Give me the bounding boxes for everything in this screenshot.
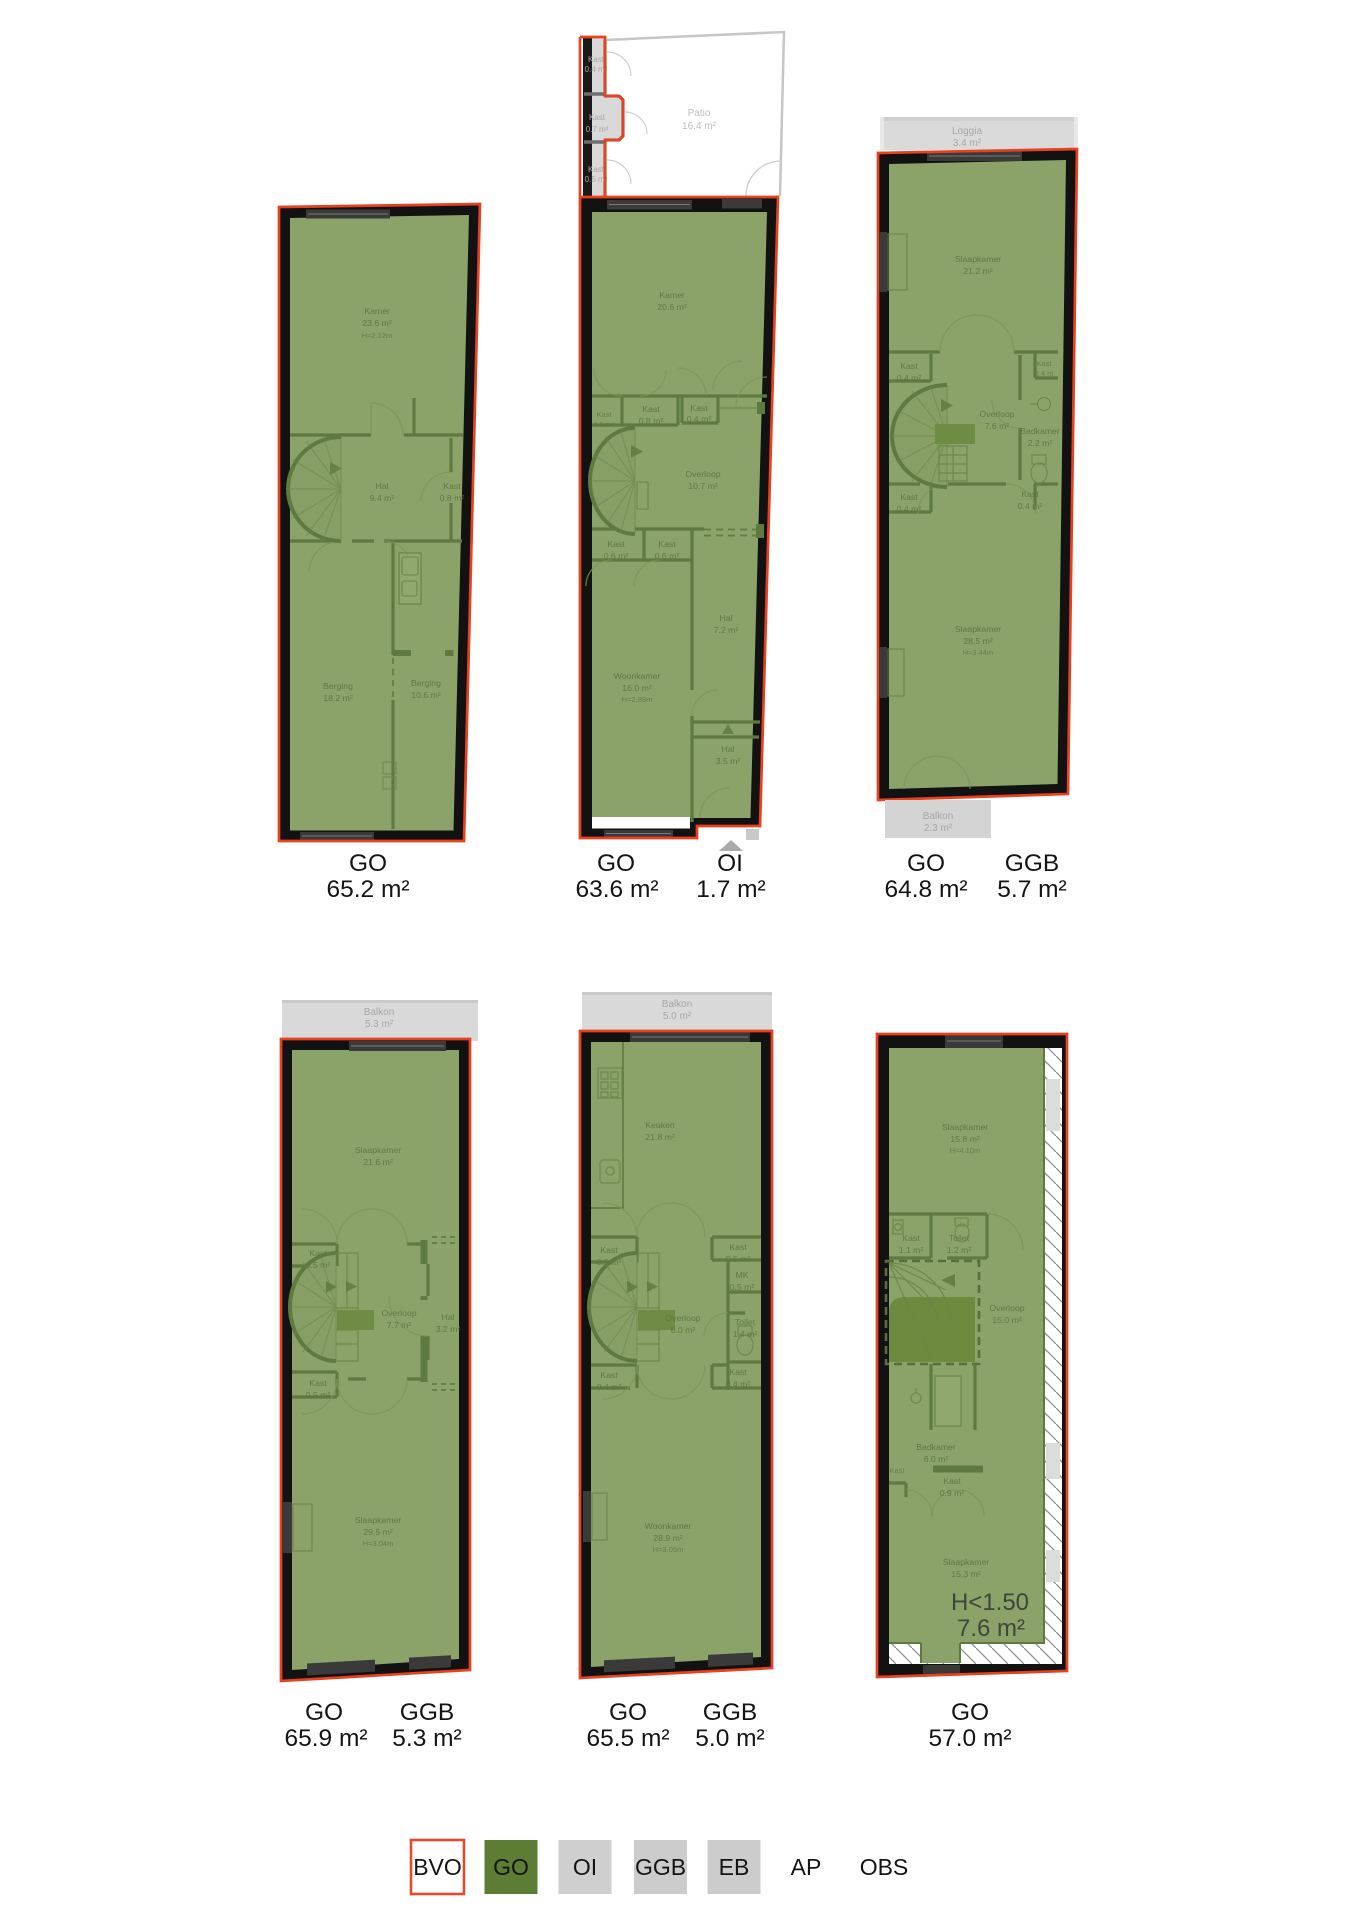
svg-text:Slaapkamer: Slaapkamer bbox=[943, 1557, 989, 1567]
svg-text:5.0 m²: 5.0 m² bbox=[695, 1725, 764, 1752]
svg-text:29.5 m²: 29.5 m² bbox=[363, 1527, 393, 1537]
svg-text:Slaapkamer: Slaapkamer bbox=[955, 254, 1001, 264]
svg-text:Kast: Kast bbox=[1021, 489, 1039, 499]
svg-text:Overloop: Overloop bbox=[381, 1308, 416, 1318]
svg-text:Hal: Hal bbox=[719, 613, 732, 623]
svg-text:GGB: GGB bbox=[703, 1699, 757, 1726]
svg-text:18.2 m²: 18.2 m² bbox=[323, 693, 353, 703]
svg-text:6.0 m²: 6.0 m² bbox=[924, 1454, 949, 1464]
svg-text:Hal: Hal bbox=[375, 481, 388, 491]
svg-text:GO: GO bbox=[305, 1699, 343, 1726]
svg-text:Kamer: Kamer bbox=[659, 290, 685, 300]
svg-text:Toilet: Toilet bbox=[735, 1317, 756, 1327]
svg-text:Hal: Hal bbox=[721, 744, 734, 754]
svg-text:9.4 m²: 9.4 m² bbox=[370, 493, 395, 503]
svg-text:0.8 m²: 0.8 m² bbox=[639, 416, 664, 426]
svg-text:GGB: GGB bbox=[1005, 850, 1059, 877]
svg-text:Kamer: Kamer bbox=[364, 306, 390, 316]
svg-text:1.4 m²: 1.4 m² bbox=[733, 1329, 758, 1339]
svg-text:23.6 m²: 23.6 m² bbox=[362, 318, 392, 328]
svg-text:AP: AP bbox=[791, 1854, 822, 1880]
svg-text:OI: OI bbox=[573, 1854, 597, 1880]
svg-text:65.5 m²: 65.5 m² bbox=[586, 1725, 669, 1752]
svg-text:0.5 m²: 0.5 m² bbox=[730, 1282, 755, 1292]
svg-text:21.2 m²: 21.2 m² bbox=[963, 266, 993, 276]
svg-text:15.8 m²: 15.8 m² bbox=[950, 1134, 980, 1144]
svg-text:BVO: BVO bbox=[413, 1854, 462, 1880]
svg-text:Kast: Kast bbox=[589, 113, 606, 122]
svg-text:1.1 m²: 1.1 m² bbox=[899, 1245, 924, 1255]
svg-text:28.9 m²: 28.9 m² bbox=[653, 1533, 683, 1543]
svg-text:Overloop: Overloop bbox=[665, 1313, 700, 1323]
svg-text:10.7 m²: 10.7 m² bbox=[688, 481, 718, 491]
svg-text:0.5 m²: 0.5 m² bbox=[306, 1260, 331, 1270]
svg-text:0.6 m²: 0.6 m² bbox=[655, 551, 680, 561]
svg-text:0.4 m: 0.4 m bbox=[1035, 369, 1054, 378]
svg-text:0.4 m²: 0.4 m² bbox=[897, 504, 922, 514]
svg-text:H=3.04m: H=3.04m bbox=[363, 1539, 394, 1548]
svg-text:0.6 m²: 0.6 m² bbox=[604, 551, 629, 561]
svg-text:Hal: Hal bbox=[441, 1312, 454, 1322]
svg-text:3.4 m²: 3.4 m² bbox=[953, 138, 982, 149]
svg-text:Overloop: Overloop bbox=[979, 409, 1014, 419]
svg-text:Berging: Berging bbox=[411, 678, 441, 688]
svg-text:Kast: Kast bbox=[902, 1233, 920, 1243]
svg-text:20.6 m²: 20.6 m² bbox=[657, 302, 687, 312]
svg-text:Kast: Kast bbox=[588, 55, 605, 64]
svg-text:GO: GO bbox=[349, 850, 387, 877]
svg-text:OBS: OBS bbox=[860, 1854, 909, 1880]
svg-text:Loggia: Loggia bbox=[952, 126, 982, 137]
svg-text:0.8 m²: 0.8 m² bbox=[440, 493, 465, 503]
svg-text:3.2 m²: 3.2 m² bbox=[436, 1324, 461, 1334]
svg-text:15.3 m²: 15.3 m² bbox=[951, 1569, 981, 1579]
svg-text:Overloop: Overloop bbox=[685, 469, 720, 479]
svg-text:0.5 m²: 0.5 m² bbox=[726, 1254, 751, 1264]
svg-text:65.2 m²: 65.2 m² bbox=[326, 876, 409, 903]
svg-text:5.7 m²: 5.7 m² bbox=[997, 876, 1066, 903]
svg-text:Balkon: Balkon bbox=[364, 1007, 395, 1018]
svg-text:MK: MK bbox=[735, 1270, 748, 1280]
svg-text:7.7 m²: 7.7 m² bbox=[387, 1320, 412, 1330]
svg-text:Toilet: Toilet bbox=[949, 1233, 970, 1243]
svg-text:7.2 m²: 7.2 m² bbox=[714, 625, 739, 635]
svg-text:GGB: GGB bbox=[635, 1854, 686, 1880]
svg-text:2.3 m²: 2.3 m² bbox=[924, 823, 953, 834]
svg-text:GO: GO bbox=[493, 1854, 529, 1880]
svg-text:Woonkamer: Woonkamer bbox=[614, 671, 661, 681]
svg-text:0.4 m²: 0.4 m² bbox=[726, 1379, 751, 1389]
svg-text:Slaapkamer: Slaapkamer bbox=[955, 624, 1001, 634]
svg-text:GGB: GGB bbox=[400, 1699, 454, 1726]
svg-text:21.8 m²: 21.8 m² bbox=[645, 1132, 675, 1142]
svg-text:0.5 m²: 0.5 m² bbox=[306, 1390, 331, 1400]
svg-text:Kast: Kast bbox=[309, 1378, 327, 1388]
svg-text:7.6 m²: 7.6 m² bbox=[957, 1615, 1025, 1642]
svg-text:H=3.09m: H=3.09m bbox=[653, 1545, 684, 1554]
svg-text:16.4 m²: 16.4 m² bbox=[682, 121, 717, 132]
svg-text:10.6 m²: 10.6 m² bbox=[411, 690, 441, 700]
svg-text:Kast: Kast bbox=[596, 410, 612, 419]
svg-text:0.4 m²: 0.4 m² bbox=[897, 373, 922, 383]
svg-text:Badkamer: Badkamer bbox=[1020, 426, 1060, 436]
svg-text:1.7 m²: 1.7 m² bbox=[696, 876, 765, 903]
svg-text:Slaapkamer: Slaapkamer bbox=[355, 1145, 401, 1155]
svg-text:Overloop: Overloop bbox=[989, 1303, 1024, 1313]
svg-text:Kast: Kast bbox=[889, 1466, 905, 1475]
svg-text:63.6 m²: 63.6 m² bbox=[575, 876, 658, 903]
svg-text:GO: GO bbox=[597, 850, 635, 877]
svg-text:GO: GO bbox=[609, 1699, 647, 1726]
svg-text:Kast: Kast bbox=[600, 1370, 618, 1380]
svg-text:Kast: Kast bbox=[443, 481, 461, 491]
svg-text:15.0 m²: 15.0 m² bbox=[992, 1315, 1022, 1325]
svg-text:Kast: Kast bbox=[642, 404, 660, 414]
svg-text:0.4 m²: 0.4 m² bbox=[597, 1382, 622, 1392]
svg-text:Kast: Kast bbox=[607, 539, 625, 549]
svg-text:Balkon: Balkon bbox=[923, 811, 954, 822]
svg-text:Kast: Kast bbox=[690, 403, 708, 413]
svg-text:Balkon: Balkon bbox=[662, 999, 693, 1010]
svg-text:0.9 m²: 0.9 m² bbox=[940, 1488, 965, 1498]
svg-text:H≈3.44m: H≈3.44m bbox=[963, 648, 993, 657]
svg-text:64.8 m²: 64.8 m² bbox=[884, 876, 967, 903]
svg-text:2.2 m²: 2.2 m² bbox=[1028, 438, 1053, 448]
svg-text:0.4 m²: 0.4 m² bbox=[1018, 501, 1043, 511]
svg-text:Kast: Kast bbox=[1036, 359, 1052, 368]
svg-text:H=2.89m: H=2.89m bbox=[622, 695, 653, 704]
svg-text:Kast: Kast bbox=[588, 165, 605, 174]
svg-text:Slaapkamer: Slaapkamer bbox=[355, 1515, 401, 1525]
svg-text:Slaapkamer: Slaapkamer bbox=[942, 1122, 988, 1132]
svg-text:Kast: Kast bbox=[900, 492, 918, 502]
svg-text:Berging: Berging bbox=[323, 681, 353, 691]
svg-text:0.6 m²: 0.6 m² bbox=[593, 420, 615, 429]
svg-text:Keuken: Keuken bbox=[645, 1120, 675, 1130]
svg-text:8.0 m²: 8.0 m² bbox=[671, 1325, 696, 1335]
svg-text:7.6 m²: 7.6 m² bbox=[985, 421, 1010, 431]
svg-text:Kast: Kast bbox=[309, 1248, 327, 1258]
svg-text:0.7 m²: 0.7 m² bbox=[586, 125, 609, 134]
svg-text:16.0 m²: 16.0 m² bbox=[622, 683, 652, 693]
svg-text:Kast: Kast bbox=[658, 539, 676, 549]
svg-text:Kast: Kast bbox=[900, 361, 918, 371]
svg-text:Kast: Kast bbox=[729, 1242, 747, 1252]
svg-text:H<1.50: H<1.50 bbox=[951, 1589, 1029, 1616]
svg-text:H≈2.12m: H≈2.12m bbox=[362, 331, 392, 340]
svg-text:0.5 m²: 0.5 m² bbox=[597, 1257, 622, 1267]
svg-text:Badkamer: Badkamer bbox=[916, 1442, 956, 1452]
svg-text:Kast: Kast bbox=[600, 1245, 618, 1255]
svg-text:H≈4.10m: H≈4.10m bbox=[950, 1146, 980, 1155]
svg-text:57.0 m²: 57.0 m² bbox=[928, 1725, 1011, 1752]
svg-text:5.3 m²: 5.3 m² bbox=[392, 1725, 461, 1752]
svg-text:21.6 m²: 21.6 m² bbox=[363, 1157, 393, 1167]
svg-text:1.2 m²: 1.2 m² bbox=[947, 1245, 972, 1255]
svg-text:EB: EB bbox=[719, 1854, 750, 1880]
svg-text:Kast: Kast bbox=[943, 1476, 961, 1486]
svg-text:5.3 m²: 5.3 m² bbox=[365, 1019, 394, 1030]
svg-text:GO: GO bbox=[907, 850, 945, 877]
svg-text:65.9 m²: 65.9 m² bbox=[284, 1725, 367, 1752]
svg-text:Kast: Kast bbox=[729, 1367, 747, 1377]
svg-text:OI: OI bbox=[717, 850, 743, 877]
svg-text:GO: GO bbox=[951, 1699, 989, 1726]
svg-text:28.5 m²: 28.5 m² bbox=[963, 636, 993, 646]
svg-text:Patio: Patio bbox=[688, 108, 711, 119]
svg-text:Woonkamer: Woonkamer bbox=[645, 1521, 692, 1531]
svg-text:5.0 m²: 5.0 m² bbox=[663, 1011, 692, 1022]
svg-text:0.4 m²: 0.4 m² bbox=[687, 414, 712, 424]
svg-text:3.5 m²: 3.5 m² bbox=[716, 756, 741, 766]
